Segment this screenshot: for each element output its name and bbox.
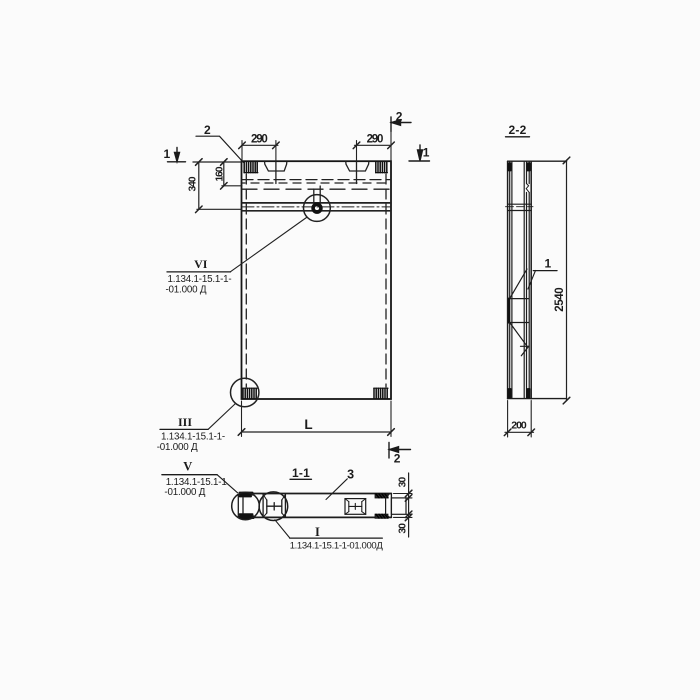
svg-text:VI: VI xyxy=(194,257,208,271)
svg-text:1.134.1-15.1-1-01.000Д: 1.134.1-15.1-1-01.000Д xyxy=(290,540,384,551)
svg-text:30: 30 xyxy=(397,523,408,534)
svg-text:2-2: 2-2 xyxy=(509,123,527,137)
svg-text:I: I xyxy=(315,525,320,539)
svg-text:L: L xyxy=(304,417,312,432)
svg-text:2: 2 xyxy=(394,452,401,466)
svg-text:3: 3 xyxy=(347,467,354,481)
svg-text:1.134.1-15.1-1-: 1.134.1-15.1-1- xyxy=(168,274,232,285)
svg-text:1: 1 xyxy=(423,145,430,159)
svg-text:1.134.1-15.1-1-: 1.134.1-15.1-1- xyxy=(161,432,225,443)
svg-text:340: 340 xyxy=(187,176,198,191)
svg-text:V: V xyxy=(183,460,192,474)
svg-text:30: 30 xyxy=(398,477,409,488)
svg-text:290: 290 xyxy=(367,134,383,146)
svg-text:2: 2 xyxy=(396,110,403,124)
svg-text:200: 200 xyxy=(511,419,527,431)
svg-text:1: 1 xyxy=(545,257,552,271)
svg-text:2540: 2540 xyxy=(554,288,566,312)
svg-text:290: 290 xyxy=(251,134,267,146)
svg-text:-01.000 Д: -01.000 Д xyxy=(166,285,207,296)
svg-text:160: 160 xyxy=(214,166,225,181)
svg-text:1: 1 xyxy=(164,147,171,161)
svg-text:2: 2 xyxy=(204,123,211,137)
svg-text:III: III xyxy=(178,415,192,429)
svg-text:-01.000 Д: -01.000 Д xyxy=(164,487,205,498)
svg-text:1-1: 1-1 xyxy=(292,466,310,480)
svg-text:-01.000 Д: -01.000 Д xyxy=(157,442,198,453)
